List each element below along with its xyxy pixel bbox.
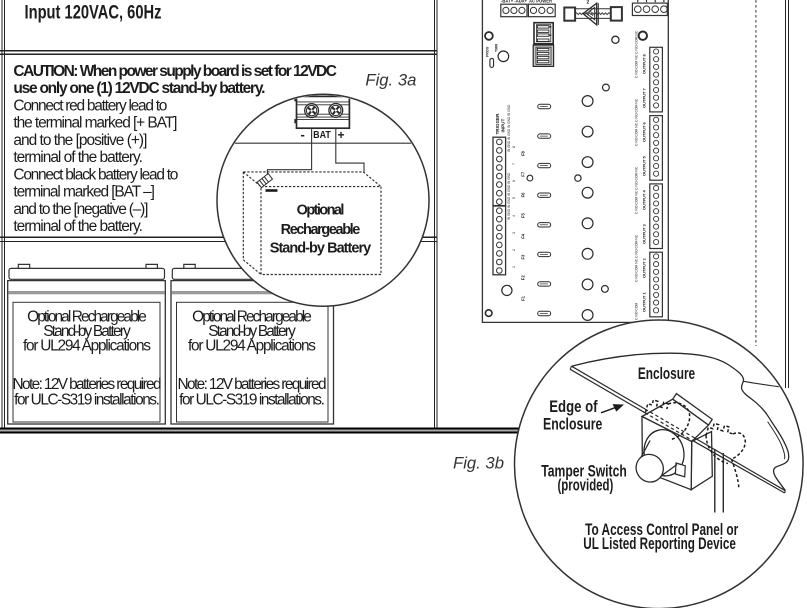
svg-text:F3: F3 [521, 254, 526, 260]
svg-text:F4: F4 [521, 233, 526, 239]
svg-text:8: 8 [512, 146, 516, 148]
svg-text:C NO COM NC C NO COM NC: C NO COM NC C NO COM NC [635, 234, 639, 282]
svg-text:for UL294 Applications: for UL294 Applications [188, 337, 316, 354]
svg-text:5: 5 [512, 197, 516, 199]
svg-text:the terminal marked [+ BAT]: the terminal marked [+ BAT] [13, 115, 177, 132]
svg-text:CAUTION: When power supply boa: CAUTION: When power supply board is set … [13, 63, 337, 80]
svg-text:F7: F7 [521, 171, 526, 177]
svg-text:F6: F6 [521, 192, 526, 198]
svg-text:1: 1 [512, 266, 516, 268]
svg-text:IN GND IN GND IN GND IN GND: IN GND IN GND IN GND IN GND [507, 172, 511, 220]
svg-text:(provided): (provided) [558, 475, 614, 494]
svg-text:C NO COM: C NO COM [635, 302, 639, 320]
svg-text:and to the [negative (–)]: and to the [negative (–)] [13, 201, 148, 218]
svg-text:Connect red battery lead to: Connect red battery lead to [13, 97, 167, 114]
svg-text:TRIGGER: TRIGGER [495, 113, 500, 135]
svg-text:OUTPUT 6: OUTPUT 6 [642, 121, 647, 142]
svg-text:for UL294 Applications: for UL294 Applications [23, 337, 151, 354]
svg-text:Enclosure: Enclosure [638, 364, 695, 383]
svg-text:OUTPUT 5: OUTPUT 5 [642, 155, 647, 176]
svg-text:-: - [301, 127, 305, 142]
svg-text:Connect black battery lead to: Connect black battery lead to [13, 166, 178, 183]
svg-text:C NO COM NC C NO COM NC: C NO COM NC C NO COM NC [635, 166, 639, 214]
svg-text:OUTPUT 8: OUTPUT 8 [642, 53, 647, 74]
svg-text:terminal of the battery.: terminal of the battery. [13, 218, 143, 235]
svg-text:for ULC-S319 installations.: for ULC-S319 installations. [14, 392, 160, 409]
svg-text:3: 3 [512, 232, 516, 234]
svg-text:F1: F1 [521, 295, 526, 301]
svg-text:use only one (1) 12VDC stand-b: use only one (1) 12VDC stand-by battery. [13, 80, 265, 97]
svg-text:4: 4 [512, 215, 516, 217]
svg-text:Optional: Optional [297, 203, 345, 219]
svg-text:TMR: TMR [495, 44, 499, 52]
svg-text:6: 6 [512, 180, 516, 182]
svg-text:2: 2 [512, 249, 516, 251]
svg-text:Fig. 3a: Fig. 3a [365, 71, 416, 90]
svg-text:IN GND IN GND IN GND IN GND: IN GND IN GND IN GND IN GND [507, 104, 511, 152]
svg-text:terminal of the battery.: terminal of the battery. [13, 149, 143, 166]
svg-text:Stand-by Battery: Stand-by Battery [270, 241, 372, 257]
svg-text:OUTPUT 3: OUTPUT 3 [642, 223, 647, 244]
svg-text:F2: F2 [521, 275, 526, 281]
svg-text:C NO COM NC C NO COM NC: C NO COM NC C NO COM NC [635, 30, 639, 78]
svg-text:F8: F8 [521, 150, 526, 156]
svg-text:terminal marked [BAT –]: terminal marked [BAT –] [13, 184, 155, 201]
svg-text:Edge of: Edge of [549, 397, 598, 416]
svg-text:+: + [337, 128, 344, 142]
svg-text:7: 7 [512, 163, 516, 165]
svg-text:BAT: BAT [313, 130, 331, 141]
svg-text:Enclosure: Enclosure [543, 414, 602, 433]
svg-text:INPUT: INPUT [501, 119, 506, 133]
svg-text:Fig. 3b: Fig. 3b [453, 453, 504, 472]
svg-text:Rechargeable: Rechargeable [281, 222, 361, 238]
svg-text:F5: F5 [521, 213, 526, 219]
svg-text:UL Listed Reporting Device: UL Listed Reporting Device [583, 534, 736, 553]
svg-text:AC POWER: AC POWER [529, 0, 552, 4]
svg-text:OUTPUT 1: OUTPUT 1 [642, 291, 647, 312]
svg-text:Note: 12V batteries required: Note: 12V batteries required [178, 376, 327, 393]
svg-text:-BAT+ -AUX+: -BAT+ -AUX+ [501, 0, 528, 4]
svg-text:PROG: PROG [486, 46, 490, 57]
svg-text:OUTPUT 2: OUTPUT 2 [642, 257, 647, 278]
svg-text:Input 120VAC, 60Hz: Input 120VAC, 60Hz [25, 2, 162, 23]
svg-text:and to the [positive (+)]: and to the [positive (+)] [13, 132, 147, 149]
svg-text:OUTPUT 7: OUTPUT 7 [642, 87, 647, 108]
svg-text:Note: 12V batteries required: Note: 12V batteries required [13, 376, 162, 393]
svg-text:for ULC-S319 installations.: for ULC-S319 installations. [179, 392, 325, 409]
svg-text:C NO COM NC C NO COM NC: C NO COM NC C NO COM NC [635, 98, 639, 146]
svg-text:2: 2 [587, 0, 590, 5]
svg-text:OUTPUT 4: OUTPUT 4 [642, 189, 647, 210]
